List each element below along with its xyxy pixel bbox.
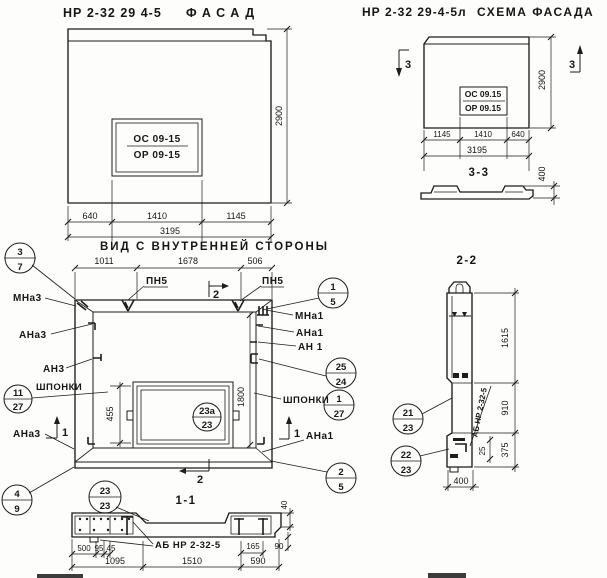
callout-11-27-bottom: 27 (13, 402, 24, 413)
callout-circle-22-23: 22 23 (391, 446, 449, 476)
inner-marker-right-label: 1 (294, 428, 300, 440)
section-2-2: 2-2 21 23 22 23 АБ НР 2-32-5 (391, 255, 519, 491)
inner-label-mna3: МНа3 (13, 293, 42, 304)
inner-shponki-right-leader (254, 393, 281, 399)
callout-21-23-bottom: 23 (403, 423, 414, 434)
inner-ana1-bottom-leader (262, 440, 304, 452)
callout-2-5-bottom: 5 (338, 482, 344, 493)
s22-dim-910: 910 (500, 400, 510, 415)
callout-circle-2-5: 2 5 (271, 461, 356, 493)
callout-1-5-top: 1 (330, 282, 336, 293)
inner-dim-1800: 1800 (236, 312, 253, 448)
inner-marker-left: 1 (46, 416, 68, 439)
callout-1-27-top: 1 (336, 394, 342, 405)
callout-circle-23a-23: 23а 23 (192, 403, 221, 431)
facade-outline (68, 29, 271, 203)
section-2-2-bottom-mark-2 (450, 454, 458, 458)
inner-marker-top: 2 (209, 281, 229, 301)
callout-1-27-bottom: 27 (334, 409, 345, 420)
callout-25-24-bottom: 24 (336, 377, 347, 388)
inner-label-mna1: МНа1 (295, 311, 324, 322)
inner-dim-1800-label: 1800 (236, 387, 246, 407)
inner-label-pn5-left: ПН5 (146, 276, 167, 287)
inner-view: ВИД С ВНУТРЕННЕЙ СТОРОНЫ 1011 1678 506 П… (2, 240, 356, 515)
schema-marker-left-label: 3 (405, 59, 411, 71)
facade-view: НР 2-32 29 4-5 ФАСАД ОС 09-15 ОР 09-15 6… (63, 6, 292, 241)
s22-dim-400: 400 (453, 476, 468, 486)
inner-window-tab-left (127, 411, 133, 420)
schema-dim-1410: 1410 (474, 130, 492, 139)
inner-an3-leader (66, 359, 92, 368)
section-2-2-bottom-anchor (455, 444, 466, 452)
inner-dim-1011: 1011 (94, 256, 113, 266)
inner-dim-1678: 1678 (178, 256, 198, 266)
inner-mna3-leader (45, 298, 76, 306)
inner-ana1-leader (258, 326, 294, 332)
inner-label-an3: АН3 (43, 364, 65, 375)
schema-dim-2900: 2900 (537, 70, 547, 90)
section-1-1-profile (72, 513, 281, 537)
inner-mna1-leader (266, 310, 293, 315)
s11-dim-1095: 1095 (105, 556, 125, 566)
schema-section-marker-left: 3 (396, 50, 411, 77)
schema-outline (424, 37, 529, 128)
inner-panel-outline (75, 300, 272, 468)
schema-dim-640: 640 (511, 130, 525, 139)
callout-23a-top: 23а (199, 406, 216, 417)
section-2-2-mark-label: АБ НР 2-32-5 (470, 386, 489, 438)
callout-3-7-bottom: 7 (17, 262, 22, 273)
facade-window-label-bottom: ОР 09-15 (134, 150, 181, 161)
s11-dim-165: 165 (246, 542, 260, 551)
callout-2-5-top: 2 (338, 467, 343, 478)
inner-marker-top-label: 2 (213, 289, 219, 301)
inner-label-shponki-right: ШПОНКИ (283, 395, 329, 406)
section-1-1-mark-label: АБ НР 2-32-5 (155, 540, 221, 551)
facade-schema-view: НР 2-32 29-4-5л СХЕМА ФАСАДА ОС 09.15 ОР… (362, 5, 594, 171)
facade-title-code: НР 2-32 29 4-5 (63, 6, 162, 20)
inner-marker-bottom-label: 2 (197, 474, 203, 486)
drawing-sheet: НР 2-32 29 4-5 ФАСАД ОС 09-15 ОР 09-15 6… (0, 0, 607, 578)
section-3-3-dim-400: 400 (537, 166, 547, 181)
callout-circle-25-24: 25 24 (259, 358, 356, 388)
inner-label-ana1-bottom: АНа1 (306, 431, 334, 442)
schema-title-name: СХЕМА ФАСАДА (477, 5, 594, 19)
section-2-2-cap-loop (452, 284, 472, 433)
facade-window-outer (112, 119, 202, 176)
schema-section-marker-right: 3 (569, 45, 583, 72)
callout-circle-3-7: 3 7 (4, 243, 75, 299)
inner-an1-leader (258, 342, 296, 346)
section-2-2-rebar-mark-2 (462, 373, 468, 378)
callout-11-27-top: 11 (13, 388, 24, 399)
facade-dim-3195: 3195 (160, 226, 180, 236)
inner-window-mid (137, 386, 229, 444)
inner-label-shponki-left: ШПОНКИ (36, 382, 82, 393)
facade-title-name: ФАСАД (186, 6, 260, 20)
section-2-2-bottom-mark-1 (453, 438, 465, 441)
schema-title-code: НР 2-32 29-4-5л (362, 5, 467, 19)
inner-label-an1: АН 1 (298, 342, 323, 353)
sheet-bottom-cutoff-right (428, 573, 466, 578)
section-3-3-title: 3-3 (468, 167, 489, 179)
s11-dim-500: 500 (77, 544, 91, 553)
s11-dim-1510: 1510 (182, 556, 202, 566)
section-2-2-foot (450, 467, 458, 472)
inner-panel-corner-lines (75, 300, 272, 462)
facade-dim-1410: 1410 (147, 211, 167, 221)
inner-label-ana3: АНа3 (19, 330, 47, 341)
inner-window-outer (133, 382, 233, 448)
callout-circle-23-23: 23 23 (89, 481, 149, 521)
schema-window-label-top: ОС 09.15 (465, 89, 502, 99)
s11-dim-90: 90 (275, 542, 284, 551)
facade-window-label-top: ОС 09-15 (133, 134, 180, 145)
schema-dim-3195: 3195 (467, 145, 487, 155)
section-1-1-title: 1-1 (175, 495, 196, 507)
section-1-1: 1-1 23 23 АБ НР 2-32-5 500 95 45 (69, 481, 294, 571)
s11-dim-40: 40 (280, 500, 289, 509)
inner-ana3-leader (51, 324, 92, 334)
inner-top-dimensions: 1011 1678 506 (72, 256, 275, 299)
s22-dim-25: 25 (478, 446, 487, 455)
facade-dim-640: 640 (82, 211, 97, 221)
section-2-2-rebar-mark-1 (453, 373, 459, 378)
inner-dim-506: 506 (247, 256, 262, 266)
inner-ana3-bottom-leader (45, 434, 74, 449)
callout-circle-4-9: 4 9 (2, 467, 74, 515)
section-3-3-profile (421, 186, 533, 199)
section-1-1-bottom-tab (90, 537, 98, 542)
callout-3-7-top: 3 (17, 247, 22, 258)
callout-circle-21-23: 21 23 (393, 398, 452, 434)
inner-label-ana3-bottom: АНа3 (13, 429, 41, 440)
inner-marker-left-label: 1 (62, 427, 68, 439)
schema-dim-1145: 1145 (433, 130, 451, 139)
callout-4-9-top: 4 (14, 489, 20, 500)
inner-view-title: ВИД С ВНУТРЕННЕЙ СТОРОНЫ (100, 240, 329, 253)
section-3-3: 3-3 400 (421, 166, 560, 205)
inner-marker-bottom: 2 (179, 459, 209, 486)
section-2-2-title: 2-2 (456, 255, 477, 267)
s11-dim-45: 45 (107, 544, 116, 553)
inner-label-pn5-right: ПН5 (262, 276, 283, 287)
schema-marker-right-label: 3 (569, 59, 575, 71)
s11-dim-95: 95 (95, 544, 104, 553)
callout-23-23-top: 23 (100, 486, 111, 497)
inner-pn5-left-leader (128, 286, 168, 300)
callout-22-23-bottom: 23 (401, 465, 412, 476)
schema-window-label-bottom: ОР 09.15 (465, 103, 501, 113)
callout-25-24-top: 25 (336, 362, 347, 373)
s22-dim-375: 375 (500, 442, 510, 457)
inner-window-tab-right (233, 411, 239, 420)
callout-22-23-top: 22 (401, 450, 412, 461)
section-1-1-rebar-dots (79, 518, 130, 531)
inner-dim-455: 455 (105, 406, 115, 421)
callout-1-5-bottom: 5 (330, 297, 336, 308)
s11-dim-590: 590 (250, 556, 265, 566)
facade-dim-1145: 1145 (226, 211, 245, 221)
inner-marker-right: 1 (279, 416, 300, 440)
facade-window-inner (116, 123, 198, 172)
callout-23a-bottom: 23 (202, 420, 213, 431)
callout-21-23-top: 21 (403, 408, 414, 419)
technical-drawing: НР 2-32 29 4-5 ФАСАД ОС 09-15 ОР 09-15 6… (0, 0, 607, 578)
callout-23-23-bottom: 23 (100, 501, 111, 512)
inner-pn5-right-leader (240, 286, 284, 301)
callout-4-9-bottom: 9 (14, 504, 19, 515)
inner-label-ana1: АНа1 (296, 328, 324, 339)
s22-dim-1615: 1615 (500, 328, 510, 348)
callout-circle-1-27: 1 27 (324, 390, 354, 420)
sheet-bottom-cutoff-left (37, 574, 83, 578)
facade-dim-2900: 2900 (274, 106, 284, 126)
